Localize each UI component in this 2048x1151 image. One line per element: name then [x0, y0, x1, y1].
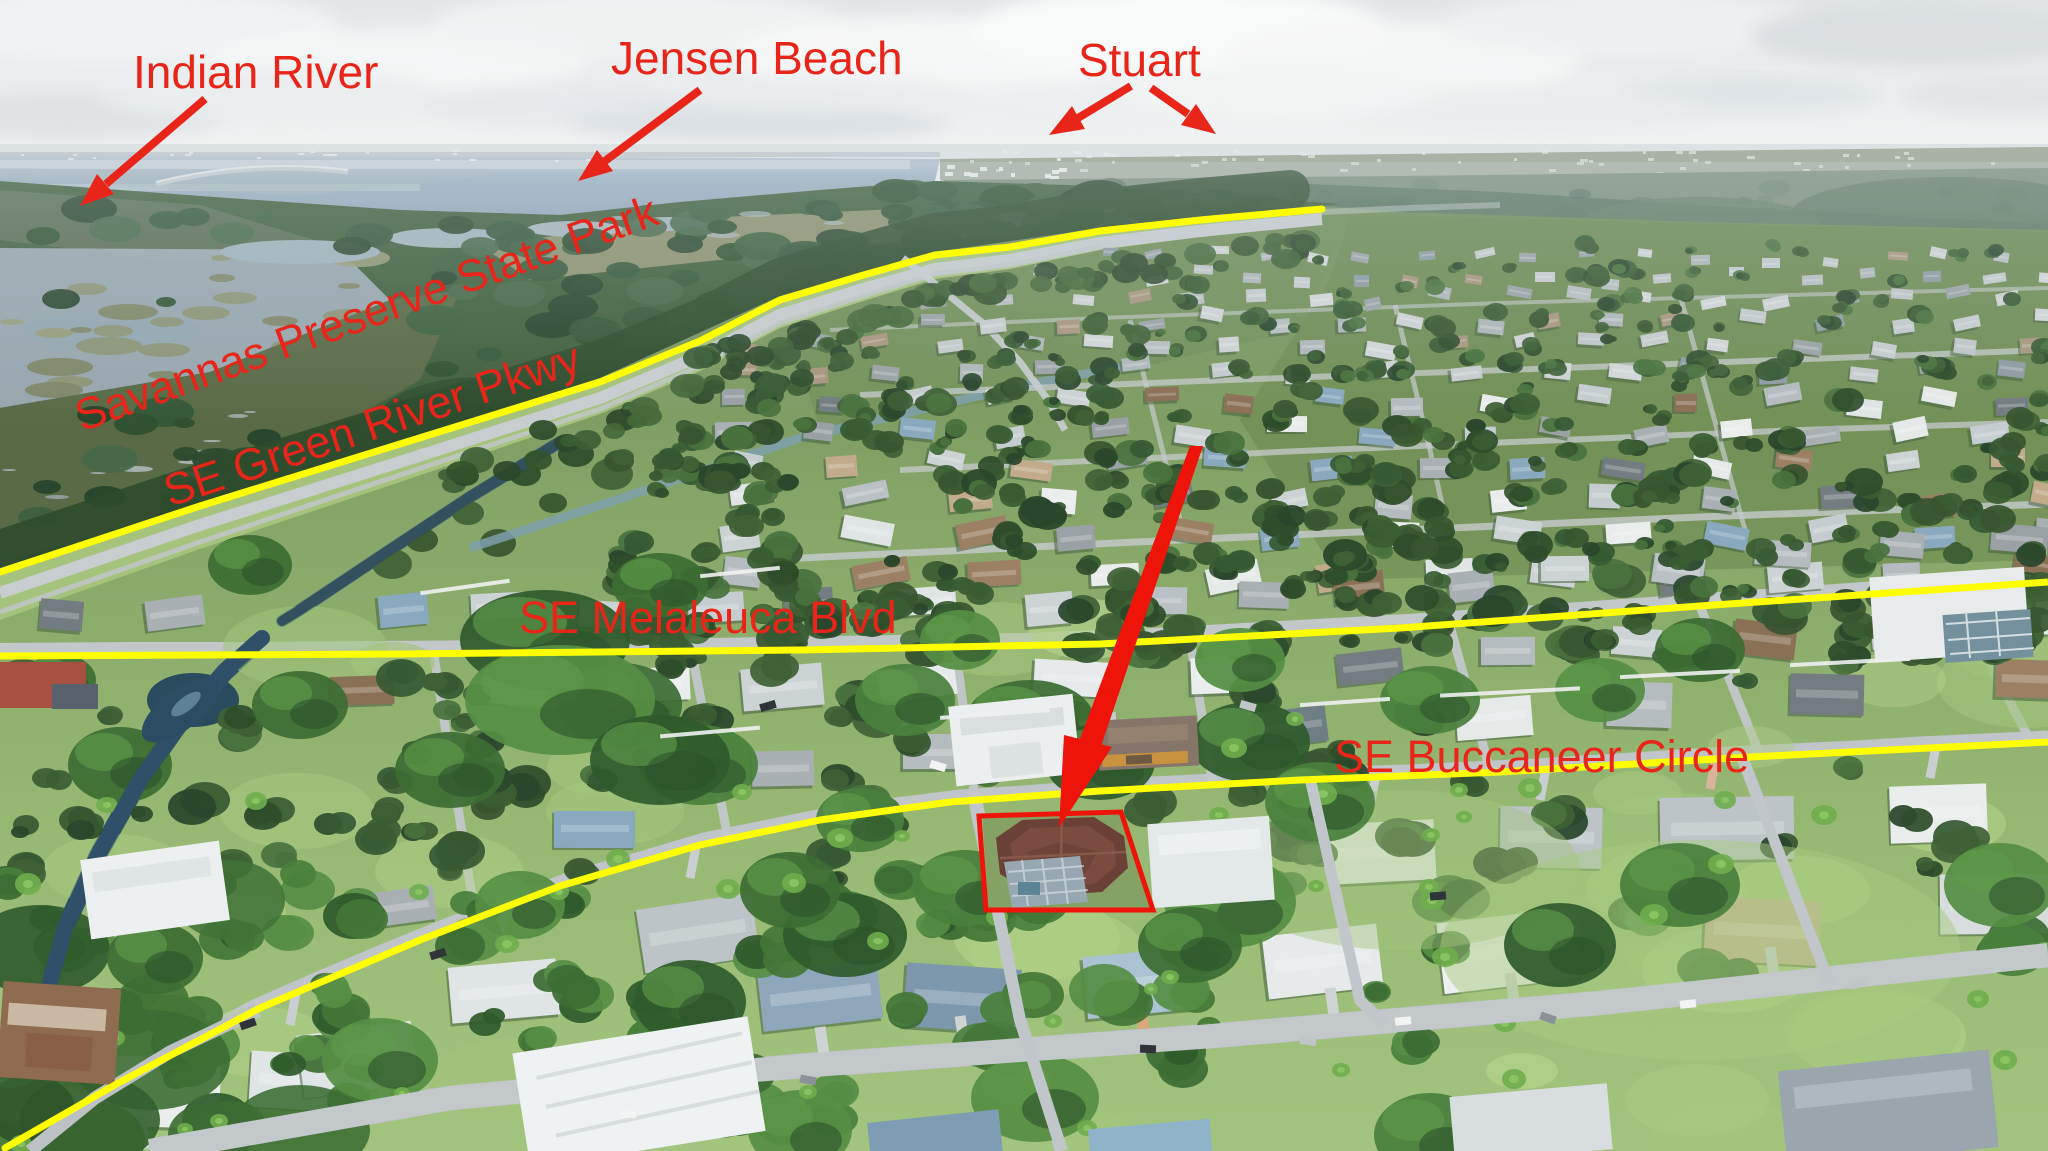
svg-text:Stuart: Stuart	[1078, 34, 1201, 86]
svg-text:SE Buccaneer Circle: SE Buccaneer Circle	[1334, 731, 1749, 782]
svg-text:Indian River: Indian River	[133, 46, 378, 98]
svg-text:Jensen Beach: Jensen Beach	[611, 32, 903, 84]
svg-text:SE Melaleuca Blvd: SE Melaleuca Blvd	[519, 592, 897, 643]
